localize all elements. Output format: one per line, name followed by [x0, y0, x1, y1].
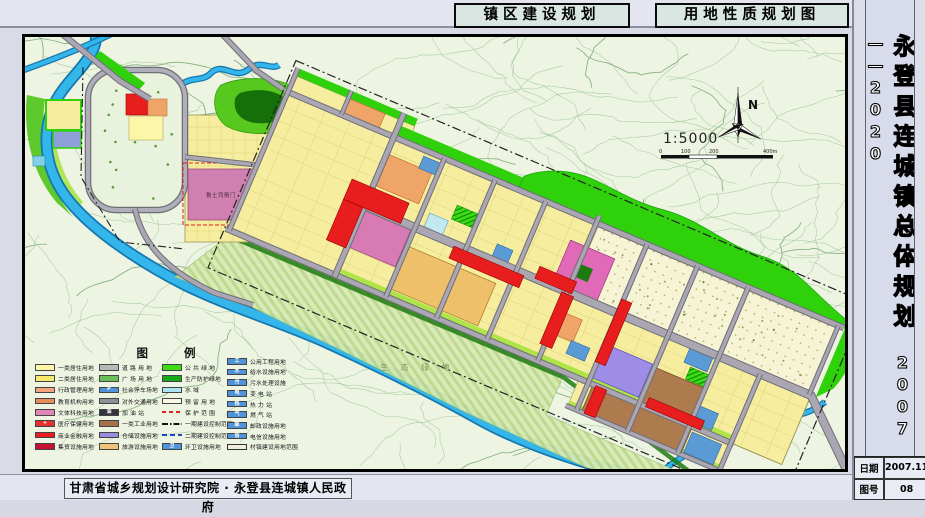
legend-label: 文体科技用地: [58, 408, 94, 417]
legend-swatch: [162, 398, 182, 405]
legend-label: 保 护 范 围: [185, 408, 215, 417]
sheet-title-column: 永登县连城镇总体规划 2007——2020: [865, 0, 915, 456]
scale-tick: 0: [659, 149, 662, 155]
legend-label: 水 域: [185, 385, 199, 394]
sheet-title: 永登县连城镇总体规划: [889, 34, 915, 334]
legend-item: 旅游设施用地: [99, 443, 158, 450]
legend-swatch: 信: [227, 433, 247, 440]
legend-item: 生产防护绿地: [162, 375, 233, 382]
legend-label: 给水设施用地: [250, 367, 286, 376]
legend-item: 二期建设控制范围: [162, 432, 233, 439]
scale-tick: 200: [709, 149, 719, 155]
scale-tick: 400m: [763, 149, 778, 155]
legend-label: 一期建设控制范围: [185, 419, 233, 428]
legend-label: 公用工程用地: [250, 357, 286, 366]
legend-item: 道 路 用 地: [99, 364, 158, 371]
legend-label: 电信设施用地: [250, 432, 286, 441]
legend-swatch: [35, 375, 55, 382]
legend-swatch: [162, 375, 182, 382]
legend-label: 污水处理设施: [250, 378, 286, 387]
legend-item: 仓储设施用地: [99, 432, 158, 439]
legend-label: 环卫设施用地: [185, 442, 221, 451]
legend-item: 污污水处理设施: [227, 379, 298, 386]
title-box-construction-plan: 镇区建设规划: [454, 3, 630, 28]
legend-swatch: 水: [227, 369, 247, 376]
legend-swatch: 热: [227, 401, 247, 408]
legend-swatch: [99, 432, 119, 439]
legend-item: 行政管理用地: [35, 387, 94, 394]
legend-swatch: [35, 398, 55, 405]
legend-column: 工公用工程用地水给水设施用地污污水处理设施电变 电 站热热 力 站气燃 气 站邮…: [227, 358, 298, 454]
legend: 图 例 一类居住用地二类居住用地行政管理用地教育机构用地文体科技用地+医疗保健用…: [31, 343, 336, 471]
legend-label: 热 力 站: [250, 400, 272, 409]
legend-label: 一类居住用地: [58, 363, 94, 372]
historic-site-label: 鲁土司衙门: [206, 191, 236, 199]
legend-swatch: +: [35, 420, 55, 427]
legend-item: 卫环卫设施用地: [162, 443, 233, 450]
legend-item: 电变 电 站: [227, 390, 298, 397]
legend-item: 商业金融用地: [35, 432, 94, 439]
legend-item: 一类居住用地: [35, 364, 94, 371]
legend-column: 道 路 用 地广 场 用 地P社会停车场地对外交通用地油加 油 站一类工业用地仓…: [99, 364, 158, 454]
legend-swatch: [99, 375, 119, 382]
legend-item: 水给水设施用地: [227, 369, 298, 376]
legend-label: 生产防护绿地: [185, 374, 221, 383]
north-label: N: [748, 98, 758, 112]
legend-item: 一期建设控制范围: [162, 420, 233, 427]
legend-item: 对外交通用地: [99, 398, 158, 405]
legend-swatch: [162, 387, 182, 394]
legend-swatch: [35, 432, 55, 439]
legend-label: 行政管理用地: [58, 385, 94, 394]
legend-column: 一类居住用地二类居住用地行政管理用地教育机构用地文体科技用地+医疗保健用地商业金…: [35, 364, 94, 454]
legend-item: 工公用工程用地: [227, 358, 298, 365]
legend-swatch: 电: [227, 390, 247, 397]
legend-swatch: [99, 364, 119, 371]
legend-label: 二期建设控制范围: [185, 431, 233, 440]
legend-swatch: [162, 432, 182, 439]
date-value: 2007.11: [884, 457, 925, 479]
sheet-info-table: 日期 2007.11 图号 08: [854, 456, 925, 500]
date-label: 日期: [854, 457, 884, 479]
legend-item: 公 共 绿 地: [162, 364, 233, 371]
legend-label: 预 留 用 地: [185, 397, 215, 406]
map-frame: .rc{fill:none;stroke:#1577b0;stroke-widt…: [22, 34, 848, 472]
legend-swatch: [162, 420, 182, 427]
legend-item: 广 场 用 地: [99, 375, 158, 382]
legend-label: 集贸设施用地: [58, 442, 94, 451]
legend-label: 道 路 用 地: [122, 363, 152, 372]
legend-item: 邮邮政设施用地: [227, 422, 298, 429]
legend-swatch: [35, 364, 55, 371]
vertical-title-block: 永登县连城镇总体规划 2007——2020: [866, 0, 915, 456]
legend-swatch: [35, 387, 55, 394]
legend-item: +医疗保健用地: [35, 420, 94, 427]
legend-swatch: [99, 443, 119, 450]
legend-swatch: [99, 420, 119, 427]
legend-item: 气燃 气 站: [227, 411, 298, 418]
sheet-number-value: 08: [884, 479, 925, 501]
legend-swatch: 卫: [162, 443, 182, 450]
legend-item: 预 留 用 地: [162, 398, 233, 405]
legend-item: 一类工业用地: [99, 420, 158, 427]
credit-box: 甘肃省城乡规划设计研究院 · 永登县连城镇人民政府: [64, 478, 352, 499]
legend-label: 广 场 用 地: [122, 374, 152, 383]
legend-label: 邮政设施用地: [250, 421, 286, 430]
legend-swatch: [227, 444, 247, 451]
legend-swatch: 油: [99, 409, 119, 416]
legend-item: 村镇建设用地范围: [227, 444, 298, 451]
legend-label: 旅游设施用地: [122, 442, 158, 451]
legend-swatch: 邮: [227, 422, 247, 429]
plan-sheet: 镇区建设规划 用地性质规划图: [0, 0, 925, 500]
scale-tick: 100: [681, 149, 691, 155]
legend-label: 一类工业用地: [122, 419, 158, 428]
legend-item: 文体科技用地: [35, 409, 94, 416]
legend-label: 社会停车场地: [122, 385, 158, 394]
legend-item: 教育机构用地: [35, 398, 94, 405]
title-box-landuse-map: 用地性质规划图: [655, 3, 849, 28]
legend-label: 加 油 站: [122, 408, 144, 417]
bottom-strip: 甘肃省城乡规划设计研究院 · 永登县连城镇人民政府: [0, 474, 852, 500]
legend-item: 热热 力 站: [227, 401, 298, 408]
legend-label: 公 共 绿 地: [185, 363, 215, 372]
legend-item: 二类居住用地: [35, 375, 94, 382]
legend-column: 公 共 绿 地生产防护绿地水 域预 留 用 地保 护 范 围一期建设控制范围二期…: [162, 364, 233, 454]
legend-swatch: [162, 409, 182, 416]
legend-item: 水 域: [162, 387, 233, 394]
legend-label: 仓储设施用地: [122, 431, 158, 440]
legend-item: P社会停车场地: [99, 387, 158, 394]
legend-item: 油加 油 站: [99, 409, 158, 416]
legend-swatch: 气: [227, 411, 247, 418]
eco-zone-label: 生 态 绿 地: [380, 362, 455, 372]
legend-swatch: [35, 443, 55, 450]
legend-swatch: [162, 364, 182, 371]
legend-item: 集贸设施用地: [35, 443, 94, 450]
legend-title: 图 例: [101, 345, 231, 361]
legend-swatch: 工: [227, 358, 247, 365]
sheet-number-label: 图号: [854, 479, 884, 501]
legend-label: 燃 气 站: [250, 410, 272, 419]
scale-text: 1:5000: [663, 131, 718, 147]
legend-label: 医疗保健用地: [58, 419, 94, 428]
legend-label: 二类居住用地: [58, 374, 94, 383]
legend-label: 变 电 站: [250, 389, 272, 398]
legend-label: 对外交通用地: [122, 397, 158, 406]
legend-label: 教育机构用地: [58, 397, 94, 406]
legend-swatch: 污: [227, 379, 247, 386]
legend-item: 保 护 范 围: [162, 409, 233, 416]
legend-swatch: [35, 409, 55, 416]
legend-label: 商业金融用地: [58, 431, 94, 440]
side-panel: 永登县连城镇总体规划 2007——2020 日期 2007.11 图号 08: [852, 0, 925, 500]
legend-item: 信电信设施用地: [227, 433, 298, 440]
legend-swatch: [99, 398, 119, 405]
legend-label: 村镇建设用地范围: [250, 442, 298, 451]
legend-swatch: P: [99, 387, 119, 394]
